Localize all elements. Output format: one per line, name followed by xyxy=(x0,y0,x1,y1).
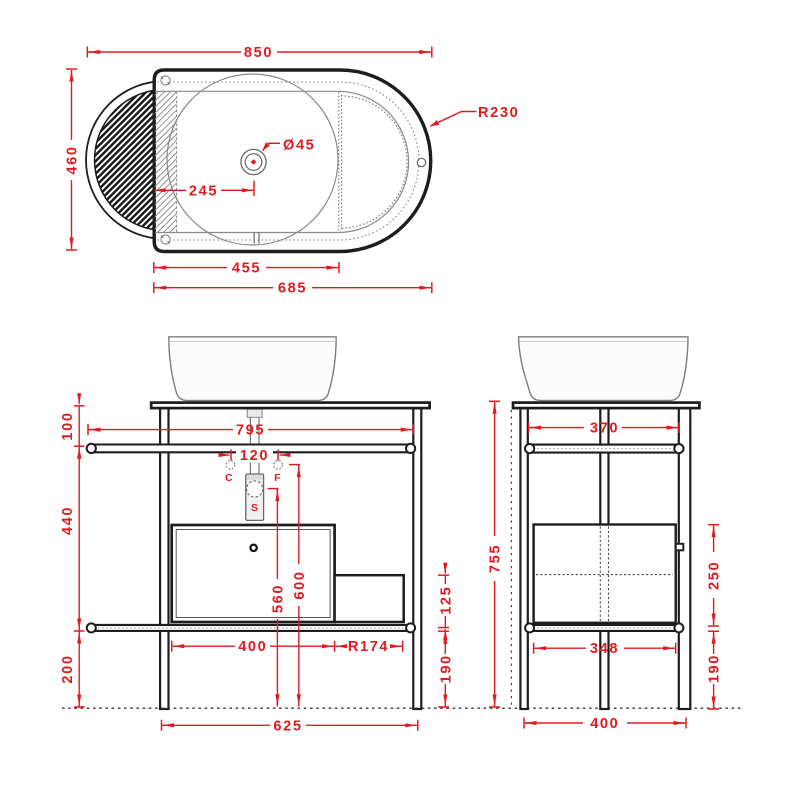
svg-text:795: 795 xyxy=(236,423,265,439)
svg-text:100: 100 xyxy=(60,411,76,440)
svg-text:400: 400 xyxy=(590,716,619,732)
svg-text:190: 190 xyxy=(707,654,723,683)
svg-text:R174: R174 xyxy=(348,639,389,655)
svg-text:625: 625 xyxy=(273,718,302,734)
svg-text:125: 125 xyxy=(438,586,454,615)
svg-text:250: 250 xyxy=(707,561,723,590)
svg-text:F: F xyxy=(274,472,281,484)
svg-text:755: 755 xyxy=(488,544,504,573)
svg-text:370: 370 xyxy=(590,421,619,437)
svg-text:C: C xyxy=(225,472,233,484)
svg-text:200: 200 xyxy=(60,654,76,683)
svg-text:R230: R230 xyxy=(478,105,519,121)
svg-text:S: S xyxy=(251,502,258,514)
svg-text:190: 190 xyxy=(438,654,454,683)
svg-text:600: 600 xyxy=(292,570,308,599)
svg-text:685: 685 xyxy=(278,281,307,297)
svg-text:455: 455 xyxy=(232,261,261,277)
svg-text:120: 120 xyxy=(240,448,269,464)
svg-text:245: 245 xyxy=(189,183,218,199)
svg-text:560: 560 xyxy=(270,584,286,613)
svg-text:348: 348 xyxy=(590,641,619,657)
svg-text:400: 400 xyxy=(238,639,267,655)
svg-text:850: 850 xyxy=(244,45,273,61)
svg-text:Ø45: Ø45 xyxy=(283,138,315,154)
svg-text:440: 440 xyxy=(60,506,76,535)
svg-text:460: 460 xyxy=(65,145,81,174)
